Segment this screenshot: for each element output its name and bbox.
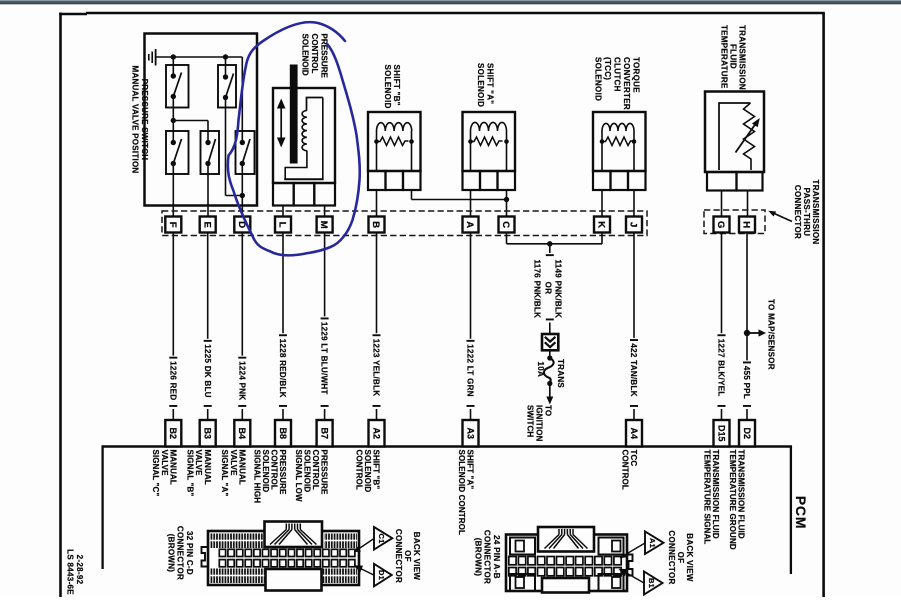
- svg-text:A3: A3: [465, 428, 475, 440]
- svg-text:B8: B8: [278, 428, 288, 440]
- svg-text:455 PPL: 455 PPL: [742, 366, 751, 399]
- svg-text:LS 8443-6E: LS 8443-6E: [66, 549, 75, 595]
- svg-text:B7: B7: [319, 428, 329, 440]
- svg-text:SIGNAL LOW: SIGNAL LOW: [294, 450, 303, 502]
- svg-text:A: A: [464, 221, 475, 228]
- svg-text:H: H: [741, 221, 752, 228]
- svg-text:SIGNAL "A": SIGNAL "A": [220, 450, 229, 497]
- svg-text:TEMPERATURE GROUND: TEMPERATURE GROUND: [728, 450, 737, 550]
- svg-text:CONVERTER: CONVERTER: [622, 57, 631, 110]
- svg-text:1225 DK BLU: 1225 DK BLU: [203, 344, 212, 398]
- svg-text:SHIFT "B": SHIFT "B": [392, 65, 401, 106]
- svg-text:TRANS: TRANS: [556, 359, 565, 388]
- svg-text:SOLENOID: SOLENOID: [300, 34, 309, 76]
- svg-text:BACK VIEW: BACK VIEW: [412, 532, 421, 581]
- svg-text:D1: D1: [377, 570, 386, 580]
- svg-text:FLUID: FLUID: [729, 44, 738, 69]
- svg-text:PRESSURE: PRESSURE: [320, 34, 329, 79]
- svg-text:1176 PNK/BLK: 1176 PNK/BLK: [533, 260, 542, 319]
- svg-text:1149 PNK/BLK: 1149 PNK/BLK: [554, 260, 563, 319]
- svg-text:SOLENOID: SOLENOID: [476, 63, 485, 107]
- svg-text:A1: A1: [648, 538, 657, 548]
- svg-text:C1: C1: [377, 534, 386, 544]
- svg-text:SOLENOID: SOLENOID: [383, 65, 392, 109]
- svg-text:CONTROL: CONTROL: [621, 450, 630, 490]
- svg-text:L: L: [277, 222, 288, 228]
- svg-text:10A: 10A: [536, 362, 545, 378]
- svg-text:SHIFT "A": SHIFT "A": [486, 63, 495, 104]
- svg-text:G: G: [715, 221, 726, 228]
- svg-text:TRANSMISSION: TRANSMISSION: [811, 180, 820, 245]
- svg-text:SOLENOID CONTROL: SOLENOID CONTROL: [457, 450, 466, 535]
- svg-text:A2: A2: [371, 428, 381, 440]
- svg-text:1222 LT GRN: 1222 LT GRN: [466, 344, 475, 396]
- svg-text:1227 BLK/YEL: 1227 BLK/YEL: [717, 339, 726, 397]
- svg-text:D15: D15: [716, 425, 726, 442]
- svg-text:TO MAP/SENSOR: TO MAP/SENSOR: [767, 299, 776, 370]
- svg-text:TEMPERATURE SIGNAL: TEMPERATURE SIGNAL: [703, 450, 712, 545]
- svg-text:1228 RED/BLK: 1228 RED/BLK: [278, 339, 287, 398]
- svg-text:CLUTCH: CLUTCH: [613, 57, 622, 92]
- svg-text:SIGNAL "B": SIGNAL "B": [186, 450, 195, 497]
- svg-text:CONNECTOR: CONNECTOR: [793, 185, 802, 239]
- svg-text:OF: OF: [676, 552, 685, 564]
- svg-text:1226 RED: 1226 RED: [168, 361, 177, 400]
- svg-text:B1: B1: [647, 578, 656, 588]
- svg-text:MANUAL VALVE POSITION: MANUAL VALVE POSITION: [130, 66, 139, 174]
- svg-text:TO: TO: [544, 405, 553, 416]
- svg-text:CONNECTOR: CONNECTOR: [176, 526, 185, 580]
- svg-text:K: K: [596, 221, 607, 228]
- svg-text:SOLENOID: SOLENOID: [594, 57, 603, 101]
- svg-text:B: B: [370, 221, 381, 228]
- svg-text:A4: A4: [629, 428, 639, 440]
- svg-text:IGNITION: IGNITION: [535, 405, 544, 442]
- svg-text:CONNECTOR: CONNECTOR: [667, 530, 676, 584]
- svg-text:TORQUE: TORQUE: [632, 57, 641, 93]
- svg-text:2-28-92: 2-28-92: [75, 555, 84, 585]
- svg-text:TRANSMISSION: TRANSMISSION: [738, 25, 747, 90]
- svg-text:E: E: [201, 222, 212, 228]
- svg-text:C: C: [500, 221, 511, 228]
- svg-text:BACK VIEW: BACK VIEW: [685, 533, 694, 582]
- svg-text:F: F: [167, 222, 178, 228]
- svg-text:OR: OR: [544, 282, 553, 295]
- svg-text:M: M: [318, 221, 329, 229]
- svg-text:SIGNAL HIGH: SIGNAL HIGH: [252, 450, 261, 504]
- svg-text:D2: D2: [742, 428, 752, 440]
- svg-text:CONNECTOR: CONNECTOR: [483, 530, 492, 584]
- svg-text:SIGNAL "C": SIGNAL "C": [151, 450, 160, 497]
- svg-text:422 TAN/BLK: 422 TAN/BLK: [629, 343, 638, 396]
- svg-text:1224 PNK: 1224 PNK: [237, 361, 246, 400]
- svg-text:(BROWN): (BROWN): [167, 534, 176, 573]
- svg-text:B4: B4: [237, 428, 247, 440]
- svg-text:PCM: PCM: [793, 496, 809, 530]
- svg-text:TEMPERATURE: TEMPERATURE: [720, 25, 729, 89]
- svg-text:(BROWN): (BROWN): [474, 538, 483, 577]
- svg-text:32 PIN C-D: 32 PIN C-D: [185, 531, 194, 575]
- svg-text:CONNECTOR: CONNECTOR: [394, 529, 403, 583]
- svg-text:24 PIN A-B: 24 PIN A-B: [492, 535, 501, 579]
- svg-text:OF: OF: [403, 550, 412, 562]
- svg-text:CONTROL: CONTROL: [310, 34, 319, 74]
- svg-text:J: J: [628, 222, 639, 227]
- svg-text:SWITCH: SWITCH: [526, 405, 535, 437]
- svg-text:1223 YEL/BLK: 1223 YEL/BLK: [372, 339, 381, 397]
- svg-text:PASS-THRU: PASS-THRU: [802, 188, 811, 237]
- svg-text:(TCC): (TCC): [603, 57, 612, 80]
- svg-text:B2: B2: [168, 428, 178, 440]
- svg-text:1229 LT BLU/WHT: 1229 LT BLU/WHT: [320, 322, 329, 395]
- svg-text:B3: B3: [203, 428, 213, 440]
- svg-text:CONTROL: CONTROL: [354, 450, 363, 490]
